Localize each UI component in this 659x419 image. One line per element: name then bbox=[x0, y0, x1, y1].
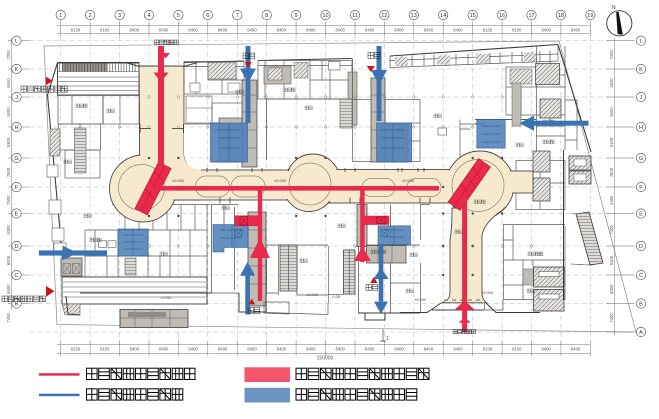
svg-text:8400: 8400 bbox=[336, 28, 346, 33]
svg-text:9: 9 bbox=[295, 13, 298, 19]
svg-text:18: 18 bbox=[558, 13, 564, 19]
svg-text:8400: 8400 bbox=[6, 107, 11, 117]
svg-text:10: 10 bbox=[322, 13, 328, 19]
svg-text:7200: 7200 bbox=[6, 49, 11, 59]
svg-text:8100: 8100 bbox=[100, 28, 110, 33]
svg-text:8400: 8400 bbox=[6, 78, 11, 88]
svg-text:±0.000: ±0.000 bbox=[274, 178, 287, 183]
svg-text:8130: 8130 bbox=[71, 347, 81, 352]
svg-text:12: 12 bbox=[381, 13, 387, 19]
svg-text:17: 17 bbox=[528, 13, 534, 19]
svg-text:F: F bbox=[639, 185, 643, 191]
svg-text:8100: 8100 bbox=[512, 28, 522, 33]
svg-text:5100: 5100 bbox=[609, 255, 614, 265]
svg-text:7500: 7500 bbox=[6, 167, 11, 177]
svg-text:±0.000: ±0.000 bbox=[481, 290, 494, 295]
svg-text:8130: 8130 bbox=[483, 28, 493, 33]
svg-text:8400: 8400 bbox=[365, 28, 375, 33]
svg-text:8400: 8400 bbox=[247, 28, 257, 33]
svg-text:8400: 8400 bbox=[130, 347, 140, 352]
svg-text:A: A bbox=[639, 330, 643, 336]
svg-text:2: 2 bbox=[89, 13, 92, 19]
svg-text:8400: 8400 bbox=[394, 28, 404, 33]
svg-text:E: E bbox=[639, 212, 643, 218]
svg-text:B: B bbox=[639, 302, 643, 308]
svg-text:J: J bbox=[640, 95, 643, 101]
svg-text:7: 7 bbox=[236, 13, 239, 19]
svg-text:4: 4 bbox=[147, 13, 150, 19]
svg-text:8400: 8400 bbox=[159, 28, 169, 33]
svg-text:J: J bbox=[15, 95, 18, 101]
svg-text:H: H bbox=[639, 125, 643, 131]
svg-text:8400: 8400 bbox=[394, 347, 404, 352]
svg-text:8400: 8400 bbox=[424, 28, 434, 33]
svg-text:8130: 8130 bbox=[483, 347, 493, 352]
svg-text:8400: 8400 bbox=[453, 347, 463, 352]
svg-text:5100: 5100 bbox=[609, 137, 614, 147]
svg-text:F: F bbox=[15, 185, 19, 191]
svg-text:8400: 8400 bbox=[453, 28, 463, 33]
svg-text:8400: 8400 bbox=[365, 347, 375, 352]
svg-text:16: 16 bbox=[499, 13, 505, 19]
svg-text:E: E bbox=[15, 212, 19, 218]
svg-text:8: 8 bbox=[265, 13, 268, 19]
svg-text:7400: 7400 bbox=[609, 224, 614, 234]
svg-text:±0.000: ±0.000 bbox=[402, 178, 415, 183]
svg-text:D: D bbox=[639, 244, 643, 250]
svg-text:8400: 8400 bbox=[336, 347, 346, 352]
svg-text:1: 1 bbox=[386, 336, 389, 342]
svg-text:8400: 8400 bbox=[609, 284, 614, 294]
svg-text:6: 6 bbox=[206, 13, 209, 19]
svg-text:K: K bbox=[639, 67, 643, 73]
svg-text:13: 13 bbox=[411, 13, 417, 19]
svg-text:C: C bbox=[639, 273, 643, 279]
svg-text:7600: 7600 bbox=[609, 167, 614, 177]
svg-text:±0.000: ±0.000 bbox=[172, 178, 185, 183]
svg-text:8400: 8400 bbox=[609, 107, 614, 117]
svg-text:+0.000: +0.000 bbox=[414, 297, 427, 302]
svg-text:±0.000: ±0.000 bbox=[306, 292, 319, 297]
svg-text:7200: 7200 bbox=[609, 49, 614, 59]
svg-text:8400: 8400 bbox=[571, 347, 581, 352]
svg-text:8400: 8400 bbox=[218, 347, 228, 352]
svg-text:15: 15 bbox=[470, 13, 476, 19]
svg-text:8400: 8400 bbox=[571, 28, 581, 33]
svg-text:7400: 7400 bbox=[609, 312, 614, 322]
svg-text:8400: 8400 bbox=[130, 28, 140, 33]
svg-text:G: G bbox=[639, 156, 643, 162]
svg-text:1: 1 bbox=[59, 13, 62, 19]
svg-text:4620: 4620 bbox=[609, 78, 614, 88]
svg-text:150000: 150000 bbox=[317, 356, 334, 362]
svg-text:-0.050: -0.050 bbox=[160, 295, 172, 300]
svg-text:B: B bbox=[15, 302, 19, 308]
svg-text:K: K bbox=[15, 67, 19, 73]
svg-text:8400: 8400 bbox=[424, 347, 434, 352]
svg-text:5300: 5300 bbox=[6, 224, 11, 234]
svg-text:14: 14 bbox=[440, 13, 446, 19]
svg-text:8400: 8400 bbox=[277, 28, 287, 33]
svg-text:11: 11 bbox=[352, 13, 358, 19]
svg-text:8400: 8400 bbox=[247, 347, 257, 352]
svg-text:8400: 8400 bbox=[277, 347, 287, 352]
svg-text:N: N bbox=[612, 5, 616, 11]
svg-text:8400: 8400 bbox=[218, 28, 228, 33]
svg-text:8130: 8130 bbox=[71, 28, 81, 33]
svg-text:5: 5 bbox=[177, 13, 180, 19]
svg-text:8100: 8100 bbox=[100, 347, 110, 352]
svg-text:8400: 8400 bbox=[306, 347, 316, 352]
svg-text:8400: 8400 bbox=[306, 28, 316, 33]
svg-text:D: D bbox=[14, 244, 18, 250]
svg-text:-0.05: -0.05 bbox=[331, 294, 341, 299]
svg-text:G: G bbox=[14, 156, 18, 162]
svg-text:8400: 8400 bbox=[6, 255, 11, 265]
svg-text:8400: 8400 bbox=[188, 347, 198, 352]
svg-text:L: L bbox=[639, 39, 642, 45]
svg-text:7400: 7400 bbox=[6, 312, 11, 322]
svg-text:7500: 7500 bbox=[6, 195, 11, 205]
svg-text:4400: 4400 bbox=[609, 195, 614, 205]
svg-text:5300: 5300 bbox=[6, 137, 11, 147]
svg-text:8400: 8400 bbox=[159, 347, 169, 352]
svg-text:8400: 8400 bbox=[542, 28, 552, 33]
svg-text:8400: 8400 bbox=[188, 28, 198, 33]
svg-text:8400: 8400 bbox=[6, 284, 11, 294]
svg-text:8100: 8100 bbox=[512, 347, 522, 352]
svg-text:C: C bbox=[14, 273, 18, 279]
svg-text:8400: 8400 bbox=[542, 347, 552, 352]
svg-text:3: 3 bbox=[118, 13, 121, 19]
svg-text:19: 19 bbox=[587, 13, 593, 19]
svg-text:L: L bbox=[15, 39, 18, 45]
svg-text:H: H bbox=[14, 125, 18, 131]
